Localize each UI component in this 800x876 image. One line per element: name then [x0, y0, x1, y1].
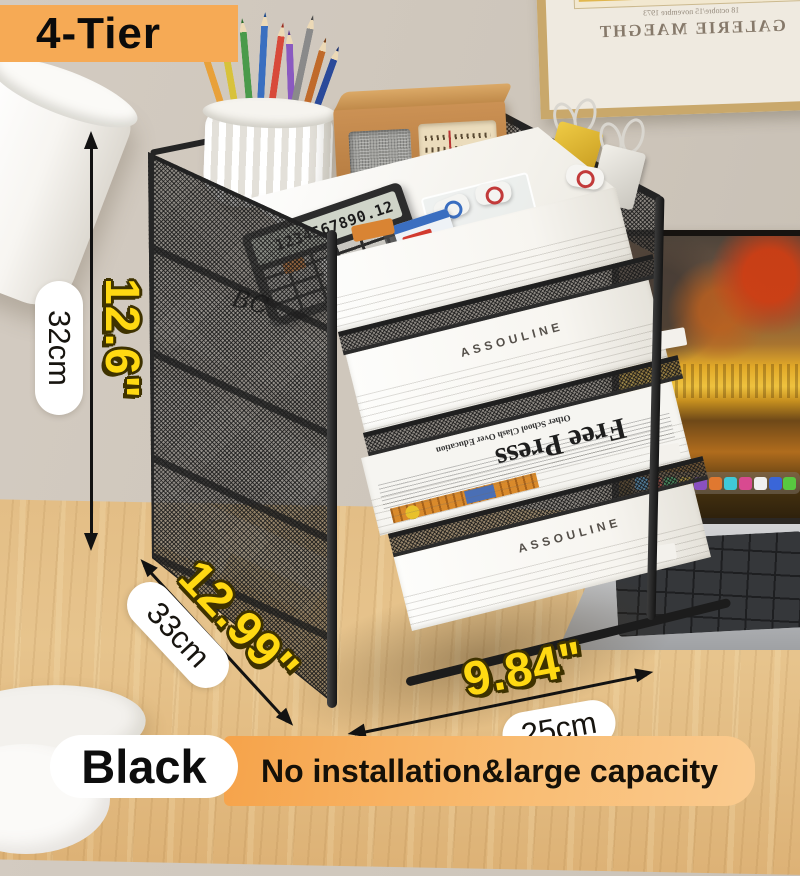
- front-left-post: [327, 230, 337, 708]
- correction-tape: [474, 180, 513, 206]
- color-badge: Black: [50, 735, 238, 798]
- arrow-up-icon: [84, 124, 98, 149]
- dock-icon: [769, 477, 782, 490]
- arrow-down-icon: [84, 533, 98, 558]
- feature-banner: No installation&large capacity: [224, 736, 755, 806]
- dock-icon: [754, 477, 767, 490]
- height-label-inch: 12.6": [94, 278, 149, 399]
- dock-icon: [783, 477, 796, 490]
- arrow-right-icon: [634, 664, 661, 683]
- height-label-cm: 32cm: [35, 281, 83, 415]
- dock-icon: [739, 477, 752, 490]
- tier-badge: 4-Tier: [0, 5, 238, 62]
- dock-icon: [724, 477, 737, 490]
